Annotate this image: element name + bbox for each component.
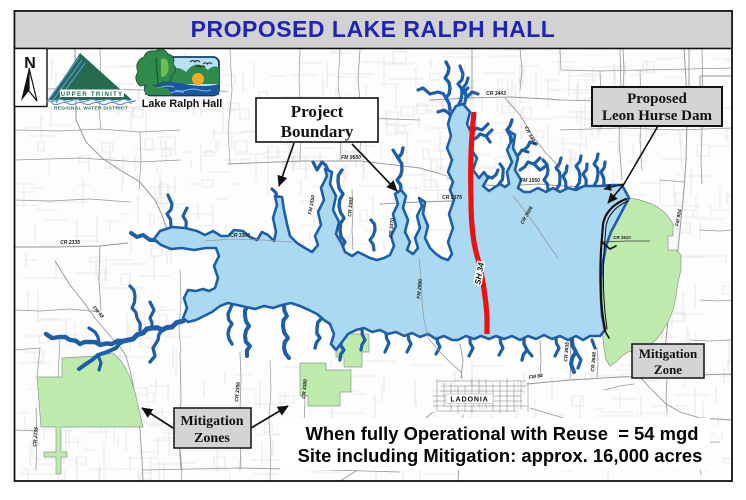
svg-text:Zone: Zone — [654, 362, 682, 377]
svg-text:FM 9550: FM 9550 — [341, 155, 361, 161]
svg-text:LADONIA: LADONIA — [450, 395, 488, 404]
svg-text:Site including Mitigation: app: Site including Mitigation: approx. 16,00… — [298, 445, 703, 466]
svg-text:N: N — [24, 55, 36, 72]
svg-text:Mitigation: Mitigation — [181, 414, 244, 429]
svg-text:CR 3443: CR 3443 — [486, 91, 506, 97]
svg-text:CR 3610: CR 3610 — [613, 235, 631, 240]
svg-text:When fully Operational with Re: When fully Operational with Reuse = 54 m… — [306, 423, 699, 444]
svg-text:Project: Project — [291, 102, 344, 121]
svg-text:PROPOSED LAKE RALPH HALL: PROPOSED LAKE RALPH HALL — [191, 16, 556, 42]
svg-text:Boundary: Boundary — [281, 122, 354, 141]
svg-text:CR 2335: CR 2335 — [60, 240, 80, 246]
svg-text:Proposed: Proposed — [627, 91, 687, 107]
svg-text:FM 1550: FM 1550 — [520, 178, 540, 184]
svg-text:UPPER TRINITY: UPPER TRINITY — [61, 91, 124, 98]
svg-text:REGIONAL WATER DISTRICT: REGIONAL WATER DISTRICT — [54, 106, 128, 112]
svg-text:Mitigation: Mitigation — [639, 346, 698, 361]
svg-text:Zones: Zones — [194, 431, 230, 446]
svg-text:CR 3360: CR 3360 — [230, 233, 250, 239]
svg-text:CR 3375: CR 3375 — [442, 195, 462, 201]
svg-text:Lake Ralph Hall: Lake Ralph Hall — [142, 98, 222, 110]
svg-text:Leon Hurse Dam: Leon Hurse Dam — [602, 108, 713, 124]
